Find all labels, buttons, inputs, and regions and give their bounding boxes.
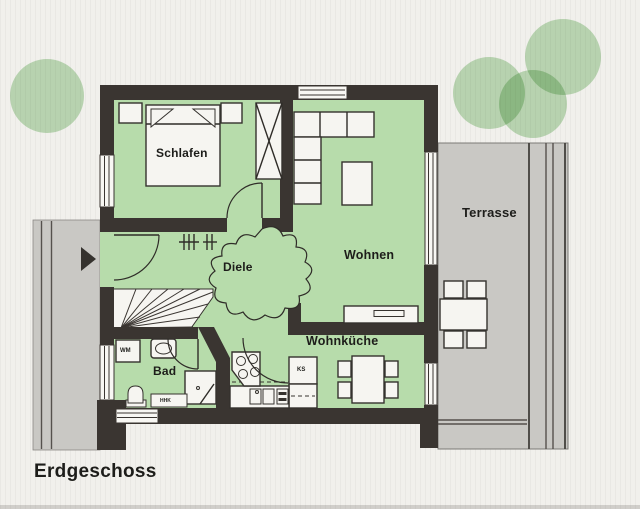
floorplan-drawing xyxy=(0,0,640,509)
terrace-chair xyxy=(467,331,486,348)
tree-icon xyxy=(10,59,84,133)
terrace-door-wohnen xyxy=(425,152,437,265)
terrace-table xyxy=(440,299,487,330)
dining-chair xyxy=(385,361,398,377)
scan-edge xyxy=(0,505,640,509)
window-bad-left xyxy=(100,345,114,400)
entrance-path xyxy=(33,220,100,450)
terrace-area xyxy=(438,143,568,449)
terrace-chair xyxy=(444,281,463,298)
room-label-diele: Diele xyxy=(223,260,253,274)
label-washing-machine: WM xyxy=(120,348,131,354)
lowboard xyxy=(344,306,418,323)
terrace-table-set xyxy=(440,281,487,348)
window-bad-bottom xyxy=(116,409,158,423)
dining-chair xyxy=(385,382,398,398)
page-title: Erdgeschoss xyxy=(34,461,157,483)
room-label-wohnen: Wohnen xyxy=(344,248,394,262)
coffee-table xyxy=(342,162,372,205)
wardrobe-icon xyxy=(256,103,282,179)
room-label-bad: Bad xyxy=(153,364,176,378)
floorplan-page: { "plan": { "title": "Erdgeschoss", "roo… xyxy=(0,0,640,509)
label-towel-radiator: HHK xyxy=(160,398,171,404)
fridge xyxy=(289,357,317,408)
oven-icon xyxy=(277,389,288,404)
dining-chair xyxy=(338,382,351,398)
room-label-terrasse: Terrasse xyxy=(462,205,517,220)
room-label-wohnkueche: Wohnküche xyxy=(306,334,378,348)
window-wohnkueche-right xyxy=(425,363,437,405)
kitchen-units xyxy=(230,352,398,408)
tree-icon xyxy=(499,70,567,138)
nightstand xyxy=(221,103,242,123)
shower-icon xyxy=(185,371,216,404)
terrace-chair xyxy=(467,281,486,298)
nightstand xyxy=(119,103,142,123)
window-schlafen-left xyxy=(100,155,114,207)
terrace-chair xyxy=(444,331,463,348)
dining-table xyxy=(352,356,384,403)
window-top-wohnen xyxy=(298,86,347,99)
dining-chair xyxy=(338,361,351,377)
room-label-schlafen: Schlafen xyxy=(156,146,208,160)
label-fridge: KS xyxy=(297,367,305,373)
